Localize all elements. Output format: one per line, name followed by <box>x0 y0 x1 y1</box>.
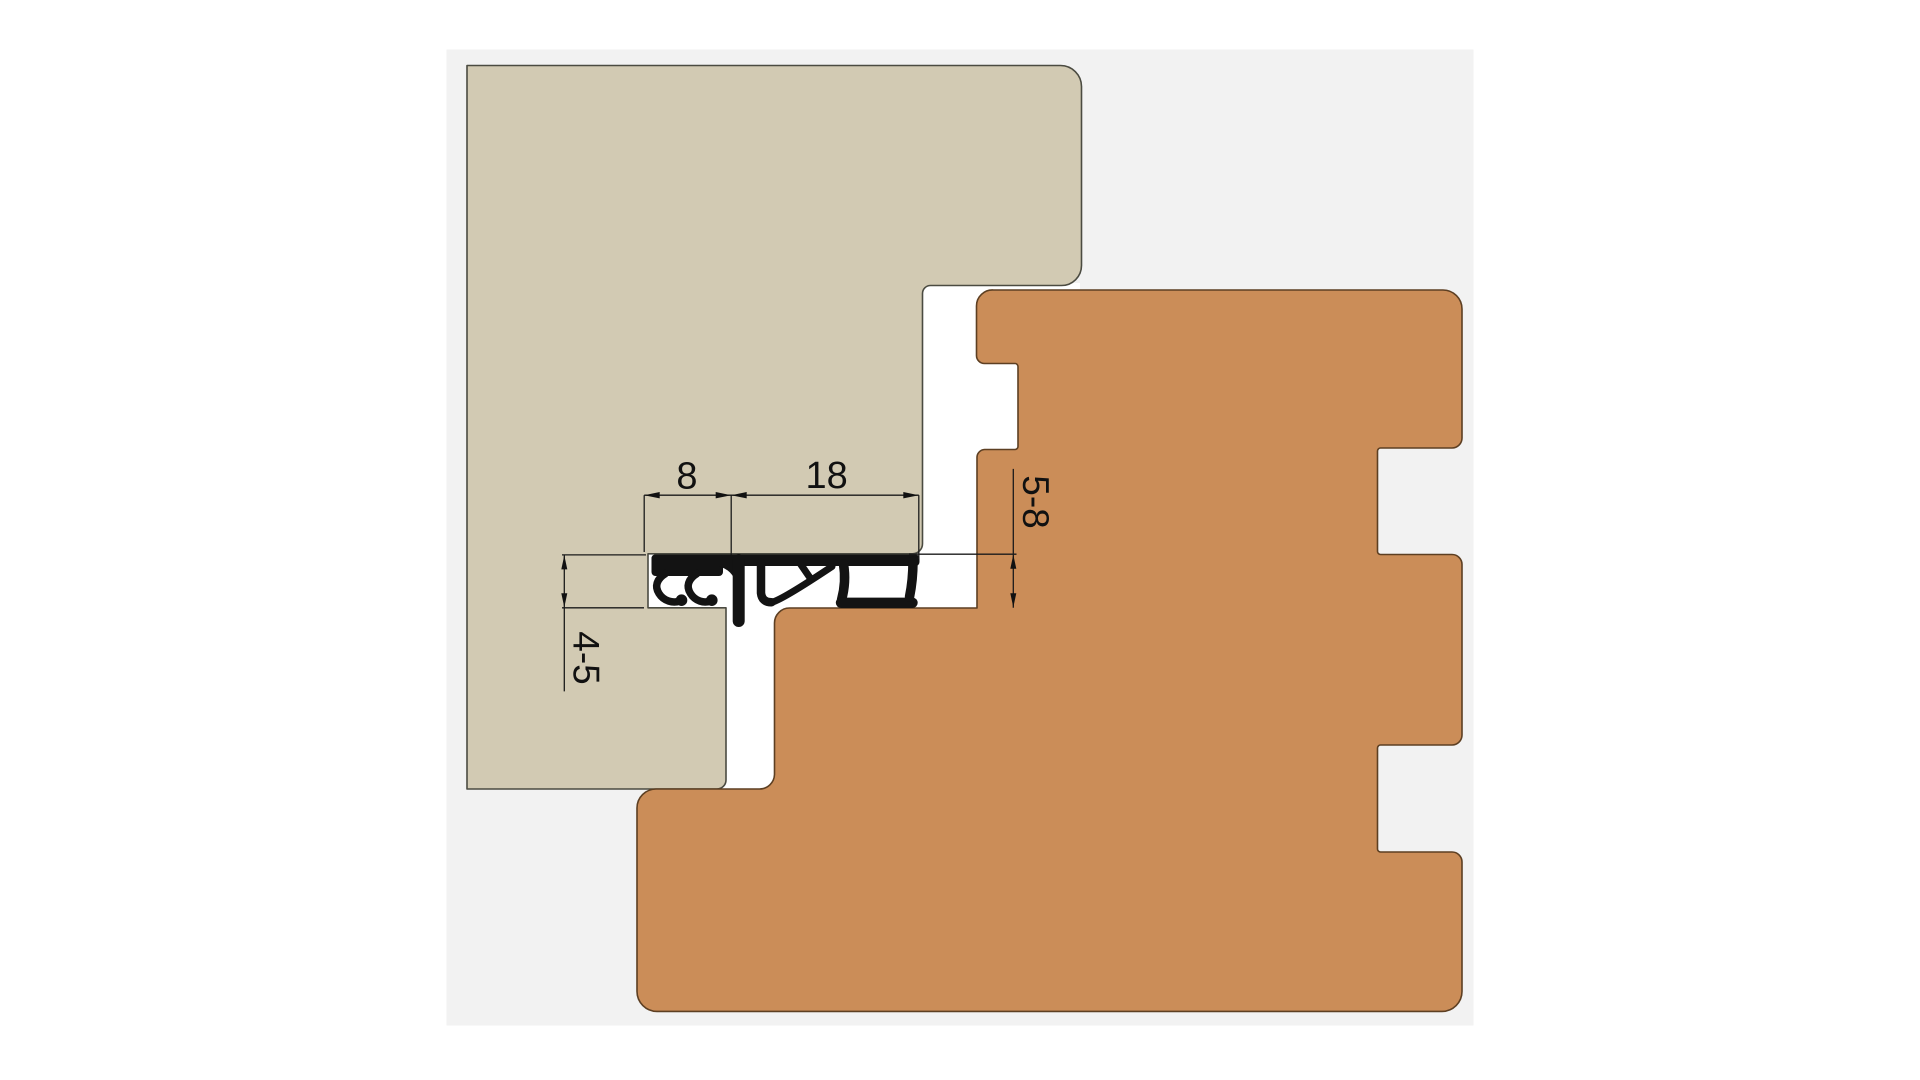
svg-text:5-8: 5-8 <box>1015 475 1056 528</box>
svg-text:4-5: 4-5 <box>566 631 607 684</box>
svg-text:18: 18 <box>806 455 848 497</box>
svg-text:8: 8 <box>676 456 697 498</box>
